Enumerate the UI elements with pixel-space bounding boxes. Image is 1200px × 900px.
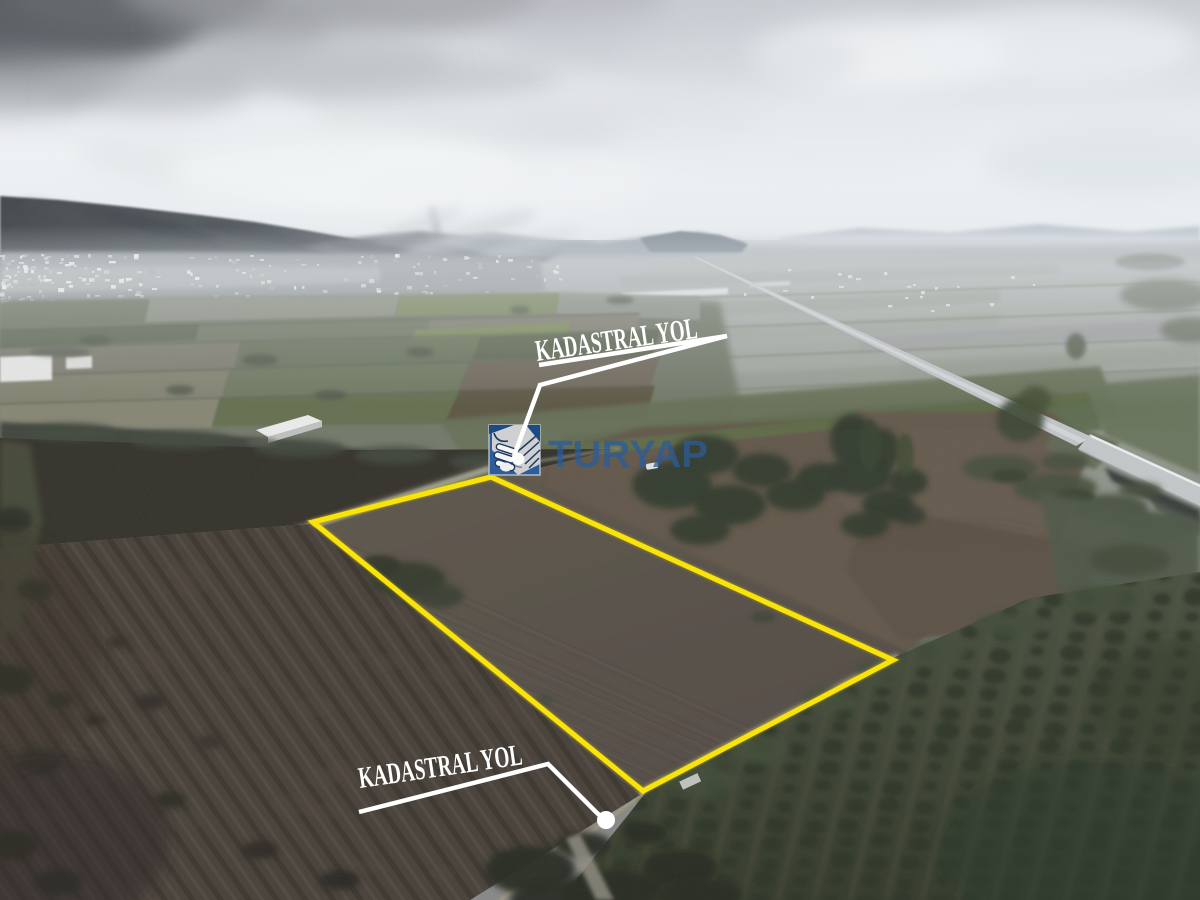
svg-text:TURYAP: TURYAP (548, 434, 708, 476)
